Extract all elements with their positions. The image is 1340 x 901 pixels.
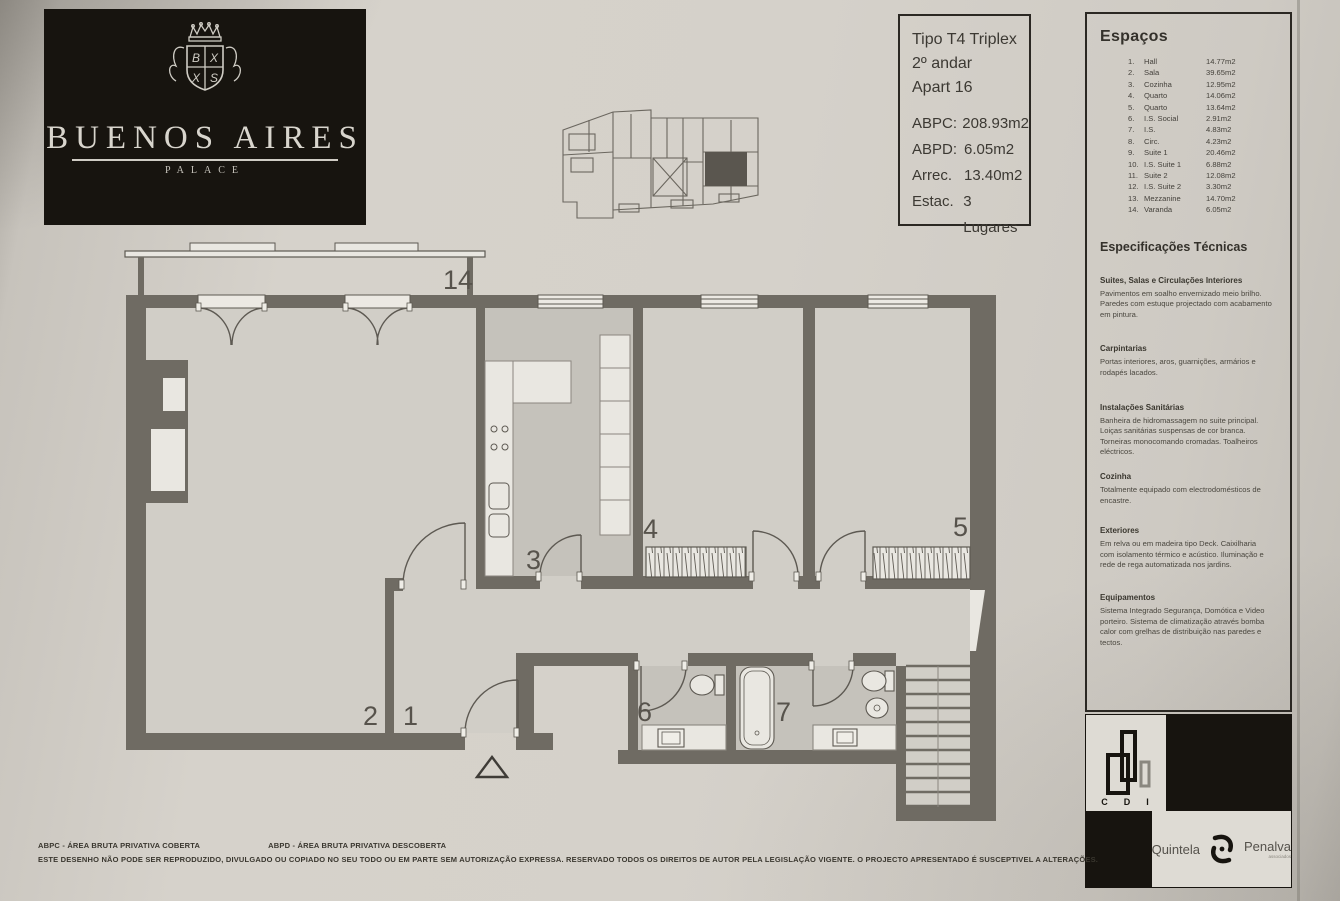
spec-title: Instalações Sanitárias	[1100, 403, 1280, 412]
qp-sub: associados	[1268, 854, 1291, 859]
brand-black-cell	[1086, 811, 1152, 887]
spec-title: Equipamentos	[1100, 593, 1280, 602]
label-quarto5: 5	[953, 512, 968, 542]
qp-swirl-icon	[1207, 832, 1237, 866]
entrance-arrow	[477, 757, 507, 777]
espacos-row: 4.Quarto14.06m2	[1128, 90, 1280, 101]
spec-title: Exteriores	[1100, 526, 1280, 535]
espacos-row: 13.Mezzanine14.70m2	[1128, 193, 1280, 204]
title-block: Tipo T4 Triplex 2º andar Apart 16 ABPC: …	[898, 14, 1031, 226]
highlighted-unit	[705, 152, 747, 186]
spec-title: Carpintarias	[1100, 344, 1280, 353]
label-hall: 1	[403, 701, 418, 731]
svg-text:X: X	[191, 71, 201, 85]
metric-value: 208.93m2	[962, 111, 1029, 137]
metric-value: 6.05m2	[964, 137, 1014, 163]
abbr-abpd: ABPD - ÁREA BRUTA PRIVATIVA DESCOBERTA	[268, 841, 446, 850]
espacos-row: 3.Cozinha12.95m2	[1128, 79, 1280, 90]
espacos-row: 5.Quarto13.64m2	[1128, 102, 1280, 113]
spec-section: Suites, Salas e Circulações Interiores P…	[1100, 276, 1280, 321]
unit-type: Tipo T4 Triplex	[912, 28, 1029, 52]
paper-fold	[1297, 0, 1300, 901]
unit-metrics: ABPC: 208.93m2 ABPD: 6.05m2 Arrec. 13.40…	[912, 111, 1029, 241]
label-is7: 7	[776, 697, 791, 727]
svg-text:S: S	[210, 71, 218, 85]
metric-label: Arrec.	[912, 163, 964, 189]
qp-left: Quintela	[1152, 842, 1200, 857]
brand-black-cell	[1167, 715, 1291, 811]
espacos-list: 1.Hall14.77m2 2.Sala39.65m2 3.Cozinha12.…	[1128, 56, 1280, 216]
abbreviations: ABPC - ÁREA BRUTA PRIVATIVA COBERTA ABPD…	[38, 841, 446, 850]
metric-row: Arrec. 13.40m2	[912, 163, 1029, 189]
espacos-row: 2.Sala39.65m2	[1128, 67, 1280, 78]
label-is-social: 6	[637, 697, 652, 727]
spec-section: Exteriores Em relva ou em madeira tipo D…	[1100, 526, 1280, 571]
spec-section: Instalações Sanitárias Banheira de hidro…	[1100, 403, 1280, 458]
spec-body: Pavimentos em soalho envernizado meio br…	[1100, 289, 1272, 321]
info-panel: Espaços 1.Hall14.77m2 2.Sala39.65m2 3.Co…	[1085, 12, 1292, 712]
cdi-letters: CDI	[1101, 797, 1165, 807]
crest-icon: BX XS	[157, 20, 253, 116]
metric-label: ABPD:	[912, 137, 964, 163]
spec-title: Suites, Salas e Circulações Interiores	[1100, 276, 1280, 285]
label-cozinha: 3	[526, 545, 541, 575]
espacos-row: 12.I.S. Suite 23.30m2	[1128, 181, 1280, 192]
espacos-row: 10.I.S. Suite 16.88m2	[1128, 159, 1280, 170]
qp-right-name: Penalva	[1244, 839, 1291, 854]
logo-rule	[72, 159, 338, 161]
spec-body: Banheira de hidromassagem no suite princ…	[1100, 416, 1272, 458]
label-sala: 2	[363, 701, 378, 731]
spec-section: Cozinha Totalmente equipado com electrod…	[1100, 472, 1280, 506]
svg-text:X: X	[209, 51, 219, 65]
quintela-penalva-logo: Quintela Penalva associados	[1152, 811, 1291, 887]
floor-plan: 14 2 1 3 4 5 6 7	[113, 233, 1015, 845]
legal-note: ESTE DESENHO NÃO PODE SER REPRODUZIDO, D…	[38, 855, 1098, 864]
spec-title: Cozinha	[1100, 472, 1280, 481]
spec-body: Totalmente equipado com electrodoméstico…	[1100, 485, 1272, 506]
spec-section: Equipamentos Sistema Integrado Segurança…	[1100, 593, 1280, 648]
espacos-row: 9.Suite 120.46m2	[1128, 147, 1280, 158]
metric-label: ABPC:	[912, 111, 962, 137]
espacos-row: 7.I.S.4.83m2	[1128, 124, 1280, 135]
brand-block: CDI Quintela Penalva associados	[1085, 714, 1292, 888]
metric-row: ABPC: 208.93m2	[912, 111, 1029, 137]
label-quarto4: 4	[643, 514, 658, 544]
metric-row: ABPD: 6.05m2	[912, 137, 1029, 163]
espacos-heading: Espaços	[1100, 28, 1280, 46]
spec-body: Portas interiores, aros, guarnições, arm…	[1100, 357, 1272, 378]
label-varanda: 14	[443, 265, 473, 295]
key-plan	[553, 100, 768, 232]
specs-heading: Especificações Técnicas	[1100, 240, 1280, 254]
cdi-logo: CDI	[1086, 715, 1167, 811]
cdi-mark-icon	[1094, 729, 1158, 795]
spec-body: Sistema Integrado Segurança, Domótica e …	[1100, 606, 1272, 648]
abbr-abpc: ABPC - ÁREA BRUTA PRIVATIVA COBERTA	[38, 841, 200, 850]
espacos-row: 1.Hall14.77m2	[1128, 56, 1280, 67]
logo-name: BUENOS AIRES	[46, 120, 364, 157]
balcony	[125, 243, 485, 299]
logo-subtitle: PALACE	[165, 165, 245, 176]
scanned-sheet: BX XS BUENOS AIRES PALACE Tipo T4 Triple…	[0, 0, 1340, 901]
svg-text:B: B	[192, 51, 200, 65]
unit-number: Apart 16	[912, 76, 1029, 100]
spec-body: Em relva ou em madeira tipo Deck. Caixil…	[1100, 539, 1272, 571]
espacos-row: 6.I.S. Social2.91m2	[1128, 113, 1280, 124]
espacos-row: 14.Varanda6.05m2	[1128, 204, 1280, 215]
espacos-row: 8.Circ.4.23m2	[1128, 136, 1280, 147]
espacos-row: 11.Suite 212.08m2	[1128, 170, 1280, 181]
unit-floor: 2º andar	[912, 52, 1029, 76]
buenos-aires-logo: BX XS BUENOS AIRES PALACE	[45, 10, 365, 224]
spec-section: Carpintarias Portas interiores, aros, gu…	[1100, 344, 1280, 378]
metric-value: 13.40m2	[964, 163, 1022, 189]
